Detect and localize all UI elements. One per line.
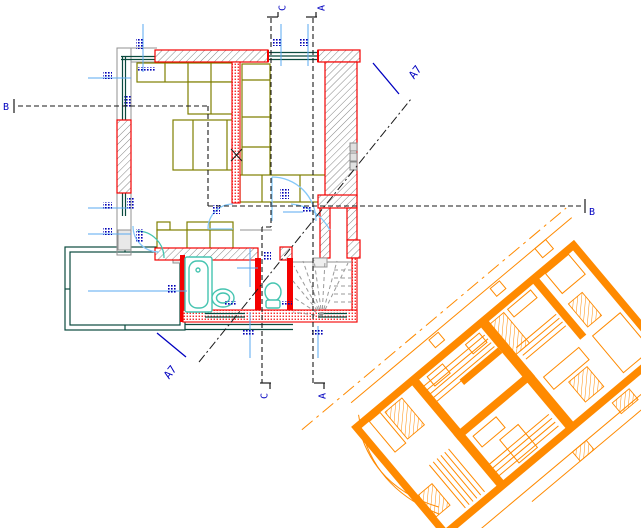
section-label-c-top: C <box>278 5 289 11</box>
dimension-text <box>103 72 112 79</box>
stair-east-wall <box>347 208 357 240</box>
dimension-text <box>280 188 289 199</box>
elevation-label-a7-lower: A7 <box>161 363 179 381</box>
floor-plan-drawing: B B C C A A <box>0 0 641 528</box>
dimension-text <box>300 39 309 46</box>
dimension-text <box>167 285 177 293</box>
section-label-a-top: A <box>317 5 328 11</box>
elevation-label-a7-upper: A7 <box>406 63 424 81</box>
cad-viewport: B B C C A A <box>0 0 641 528</box>
dimension-text <box>225 301 237 305</box>
north-wall <box>318 50 360 62</box>
east-wall <box>325 62 357 197</box>
wall-vent <box>350 143 357 170</box>
dimension-text <box>138 67 156 71</box>
dimension-text <box>282 301 292 305</box>
west-pier <box>117 120 131 193</box>
bed <box>173 120 236 170</box>
dimension-text <box>273 39 282 46</box>
dimension-text <box>103 202 112 209</box>
dimension-text <box>136 229 144 242</box>
dimension-text <box>243 330 255 336</box>
dimension-text <box>263 252 271 260</box>
section-label-b-right: B <box>589 207 595 218</box>
toilet <box>265 283 281 308</box>
stair-treads <box>293 260 352 316</box>
north-wall <box>155 50 268 62</box>
stair-pier <box>347 240 360 258</box>
section-label-b-left: B <box>3 102 9 113</box>
staircase <box>293 258 352 316</box>
door-jamb <box>118 230 131 250</box>
north-window <box>268 50 318 62</box>
dimension-text <box>303 207 312 213</box>
bathtub <box>185 257 212 312</box>
partition-wall <box>232 62 240 203</box>
section-label-c-bottom: C <box>260 393 271 399</box>
dimension-text <box>103 228 112 235</box>
sofa <box>157 222 233 249</box>
dimension-text <box>127 197 134 210</box>
dimension-text <box>136 38 143 49</box>
stair-west-wall <box>320 208 330 258</box>
section-label-a-bottom: A <box>318 393 329 399</box>
dimension-text <box>124 96 131 107</box>
